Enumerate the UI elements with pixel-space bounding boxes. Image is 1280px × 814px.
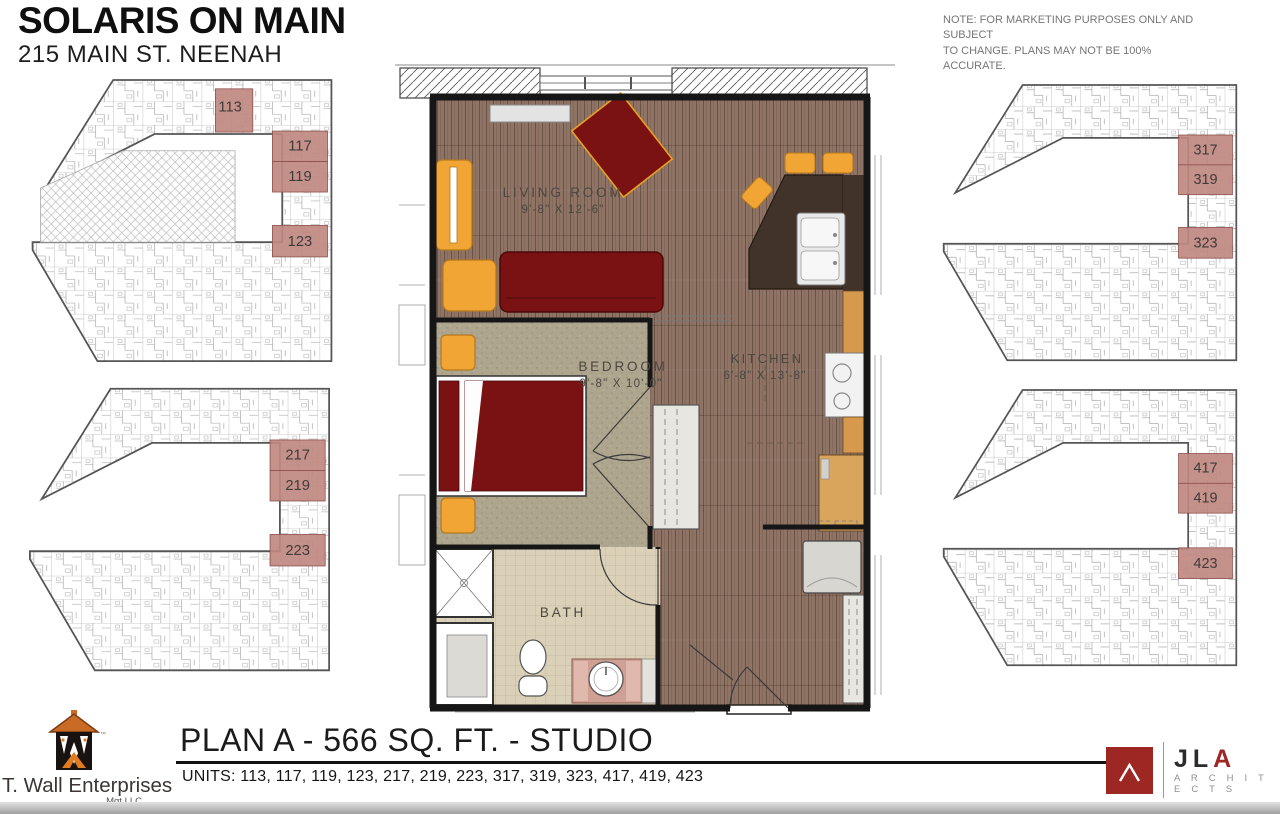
unit-423-label: 423 [1193,556,1217,572]
bed-blanket [465,381,583,491]
jla-wordmark: JLA [1174,746,1280,772]
disclaimer-line1: NOTE: FOR MARKETING PURPOSES ONLY AND SU… [943,13,1211,44]
units-line: UNITS: 113, 117, 119, 123, 217, 219, 223… [182,768,703,786]
utility-appliance [447,635,487,697]
building-plan-third-floor: 317 319 323 [936,76,1244,374]
bedroom-label: BEDROOM [578,359,667,374]
unit-317-label: 317 [1193,142,1217,158]
disclaimer-note: NOTE: FOR MARKETING PURPOSES ONLY AND SU… [943,13,1211,75]
bar-stool [823,153,853,173]
unit-319-label: 319 [1193,172,1217,188]
tv-console [490,105,570,122]
unit-323-label: 323 [1193,236,1217,252]
unit-419-label: 419 [1193,491,1217,507]
kitchen-dims: 6'-8" X 13'-8" [723,370,806,382]
toilet [520,640,546,674]
unit-417-label: 417 [1193,461,1217,477]
building-outline [944,85,1237,360]
bedroom-closet [653,405,699,529]
nightstand [441,498,475,533]
nightstand [441,335,475,370]
jla-architects-text: A R C H I T E C T S [1174,773,1280,795]
twall-name: T. Wall Enterprises [2,774,162,798]
units-label: UNITS: [182,768,236,785]
bar-stool [785,153,815,173]
sofa [500,252,663,312]
disclaimer-line2: TO CHANGE. PLANS MAY NOT BE 100% ACCURAT… [943,44,1211,75]
building-plan-first-floor: 113 117 119 123 [16,78,348,368]
unit-floorplan: LIVING ROOM 9'-8" X 12'-6" BEDROOM 9'-8"… [395,55,895,715]
unit-123-label: 123 [288,234,313,250]
divider-rule [176,761,1106,764]
building-outline [944,390,1237,665]
bedroom-dims: 9'-8" X 10'-0" [579,378,662,390]
building-plan-fourth-floor: 417 419 423 [936,380,1244,680]
unit-117-label: 117 [288,139,312,155]
jla-divider [1163,742,1164,798]
building-plan-second-floor: 217 219 223 [22,386,337,678]
entry-closet [843,595,867,703]
unit-119-label: 119 [288,169,312,185]
twall-tower-icon: ™ [48,710,106,772]
svg-text:™: ™ [100,731,106,738]
bed-headboard [439,381,459,491]
top-window-band [395,65,895,98]
living-room-dims: 9'-8" X 12'-6" [521,204,604,216]
unit-113-label: 113 [218,99,242,115]
jla-logo: JLA A R C H I T E C T S [1106,742,1280,798]
bath-label: BATH [540,605,586,620]
entry-vestibule [727,705,791,714]
unit-223-label: 223 [285,543,310,559]
jla-square-icon [1106,747,1153,794]
bottom-gradient-strip [0,802,1280,814]
living-room-label: LIVING ROOM [503,185,624,200]
kitchen-counter-dark [843,175,867,291]
kitchen-cabinet [843,291,867,353]
unit-217-label: 217 [285,448,310,464]
kitchen-label: KITCHEN [731,351,803,366]
ottoman [443,260,496,311]
plan-title: PLAN A - 566 SQ. FT. - STUDIO [180,722,653,759]
header: SOLARIS ON MAIN 215 MAIN ST. NEENAH [18,0,346,68]
twall-logo: ™ T. Wall Enterprises Mgt LLC [2,710,162,807]
building-outline [30,389,329,671]
kitchen-cabinet [843,417,867,453]
page-subtitle: 215 MAIN ST. NEENAH [18,42,346,68]
washer-dryer [803,541,861,593]
page-title: SOLARIS ON MAIN [18,0,346,42]
units-list: 113, 117, 119, 123, 217, 219, 223, 317, … [236,768,703,785]
unit-219-label: 219 [285,478,310,494]
jla-caret-icon [1106,747,1153,794]
floorplan-sheet: SOLARIS ON MAIN 215 MAIN ST. NEENAH NOTE… [0,0,1280,814]
